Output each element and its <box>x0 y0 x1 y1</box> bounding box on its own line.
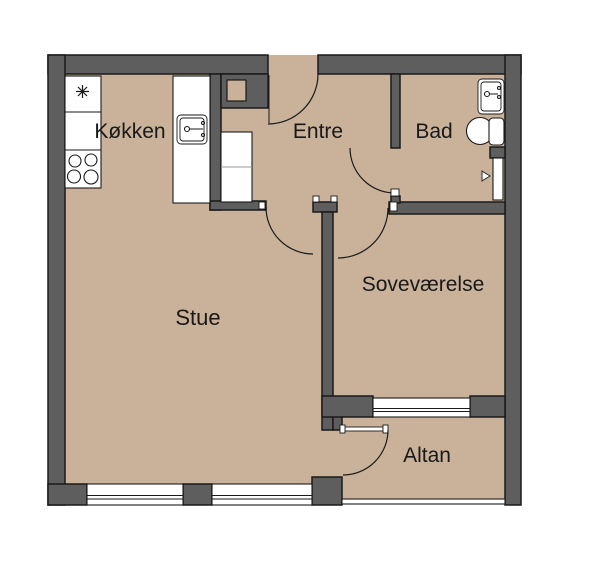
room-label-entre: Entre <box>293 120 343 143</box>
floor-plan-page: Køkken Entre Bad Stue Soveværelse Altan <box>0 0 600 562</box>
room-label-stue: Stue <box>175 305 220 330</box>
wall-bedroom-bottom <box>322 396 373 417</box>
wall-bath-bottom <box>389 202 505 214</box>
toilet-icon <box>467 118 505 146</box>
balcony-railing <box>342 499 505 504</box>
room-label-bad: Bad <box>415 120 452 143</box>
bath-sink-icon <box>478 79 504 114</box>
kitchen-sink-icon <box>177 115 207 144</box>
duct-shaft <box>227 80 246 101</box>
wall-bottom-left-corner <box>48 484 87 505</box>
wall-top-right <box>318 55 521 74</box>
wall-shower-stub <box>490 147 505 158</box>
window-bedroom-balcony <box>373 398 470 417</box>
wall-top-left <box>48 55 268 74</box>
entre-wardrobe <box>221 132 252 202</box>
wall-kitchen-vertical <box>210 74 221 210</box>
wall-bottom-pillar <box>183 484 212 505</box>
room-label-altan: Altan <box>403 444 451 467</box>
wall-entre-bad <box>391 74 400 148</box>
wall-balcony-left-block <box>312 477 342 505</box>
room-label-sovevaerelse: Soveværelse <box>362 273 485 296</box>
shower-screen <box>493 158 503 200</box>
room-label-kokken: Køkken <box>94 120 165 143</box>
wall-bedroom-bottom-block <box>470 396 505 417</box>
window-stue-left <box>87 484 183 505</box>
wall-right <box>505 55 521 505</box>
wall-t-top <box>313 202 337 212</box>
wall-left <box>48 55 65 505</box>
window-stue-right <box>212 484 312 505</box>
floor-plan: Køkken Entre Bad Stue Soveværelse Altan <box>0 0 600 562</box>
